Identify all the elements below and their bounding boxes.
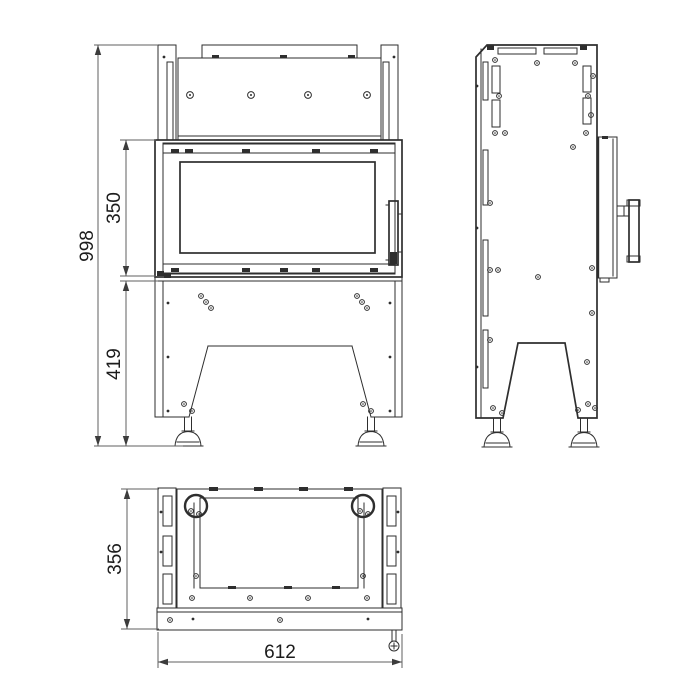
dim-label-base-height: 419	[104, 348, 125, 380]
front-right-foot	[356, 417, 386, 446]
plan-right-rail	[383, 488, 401, 608]
plan-view	[157, 487, 402, 651]
plan-left-rail	[158, 488, 176, 608]
front-glass	[180, 162, 375, 253]
side-front-foot	[482, 418, 512, 447]
side-handle-bar	[629, 200, 639, 262]
technical-drawing: 998 350 419 356 612	[0, 0, 700, 700]
side-handle-bracket	[617, 206, 629, 216]
front-hood	[178, 58, 381, 140]
dim-label-depth: 356	[105, 543, 126, 575]
side-door	[598, 137, 617, 278]
side-body-outline	[476, 45, 597, 418]
front-left-foot	[173, 417, 203, 446]
side-rear-foot	[569, 418, 599, 447]
dimension-annotations: 998 350 419 356 612	[77, 45, 402, 668]
plan-inner-opening	[200, 498, 358, 588]
dim-label-door-height: 350	[104, 192, 125, 224]
front-firebox-frame	[155, 140, 402, 277]
side-view	[476, 45, 640, 447]
dim-label-width: 612	[264, 642, 296, 663]
dim-label-overall-height: 998	[77, 230, 98, 262]
front-view	[155, 45, 402, 446]
drawing-canvas: 998 350 419 356 612	[0, 0, 700, 700]
front-top-cap	[202, 45, 357, 58]
